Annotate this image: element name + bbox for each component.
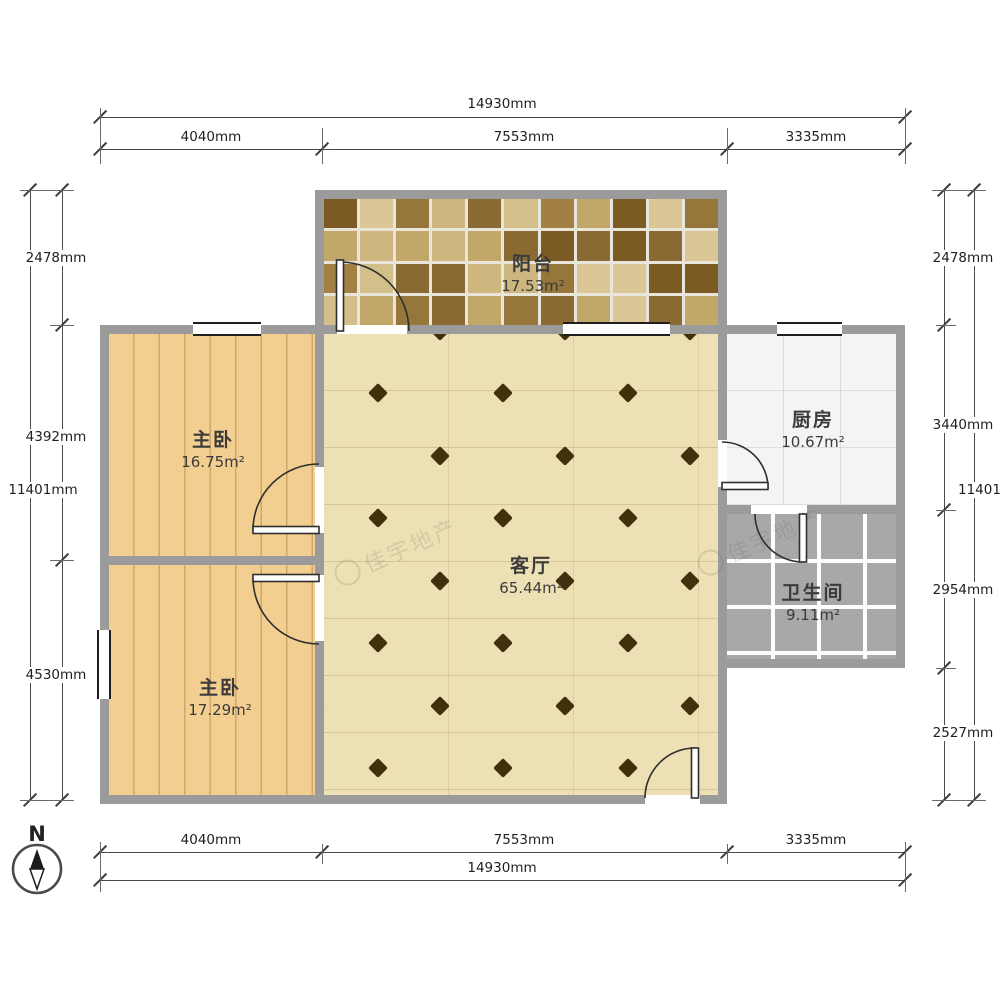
floor-diamond-motif: [324, 696, 325, 716]
balcony-tile: [649, 264, 682, 293]
dim-right-total: 11401mm: [956, 482, 1000, 498]
balcony-tile: [324, 296, 357, 325]
dim-extension-line: [727, 128, 728, 164]
dim-extension-line: [50, 560, 74, 561]
floor-diamond-motif: [680, 334, 700, 340]
floor-diamond-motif: [680, 446, 700, 466]
floor-diamond-motif: [368, 758, 388, 778]
room-label-living: 客厅 65.44m²: [499, 551, 563, 597]
balcony-tile: [324, 199, 357, 228]
kitchen-door-opening: [718, 440, 727, 487]
balcony-tile: [396, 231, 429, 260]
dim-bottom-seg-1: 4040mm: [179, 832, 244, 848]
room-area-bedroom-bottom: 17.29m²: [188, 701, 252, 719]
balcony-tile: [396, 296, 429, 325]
floor-diamond-motif: [493, 633, 513, 653]
room-area-living: 65.44m²: [499, 579, 563, 597]
floor-diamond-motif: [618, 508, 638, 528]
balcony-tile: [324, 231, 357, 260]
dim-bottom-total: 14930mm: [465, 860, 538, 876]
dim-extension-line: [322, 128, 323, 164]
balcony-tile: [685, 296, 718, 325]
bedroom-top-door-opening: [315, 467, 324, 533]
dim-right-seg-2: 3440mm: [931, 417, 996, 433]
balcony-tile: [685, 231, 718, 260]
dim-right-seg-3: 2954mm: [931, 582, 996, 598]
floor-diamond-motif: [555, 446, 575, 466]
floor-diamond-motif: [430, 571, 450, 591]
balcony-tile: [649, 231, 682, 260]
dim-line-right-inner: [944, 190, 945, 800]
dim-top-seg-2: 7553mm: [492, 129, 557, 145]
dim-line-top-outer: [100, 117, 905, 118]
balcony-tile: [685, 264, 718, 293]
kitchen-window: [777, 322, 842, 336]
wall-balcony-left: [315, 199, 324, 334]
balcony-tile: [577, 296, 610, 325]
wall-balcony-top: [315, 190, 727, 199]
floor-diamond-motif: [680, 696, 700, 716]
floor-diamond-motif: [555, 696, 575, 716]
balcony-tile: [613, 264, 646, 293]
balcony-tile: [613, 199, 646, 228]
dim-extension-line: [727, 844, 728, 864]
wall-bedrooms-living: [315, 334, 324, 795]
floor-diamond-motif: [324, 571, 325, 591]
balcony-tile: [541, 199, 574, 228]
room-name-balcony: 阳台: [501, 249, 565, 276]
dim-extension-line: [100, 842, 101, 892]
floor-diamond-motif: [493, 508, 513, 528]
floor-diamond-motif: [430, 446, 450, 466]
dim-extension-line: [100, 108, 101, 164]
balcony-tile: [541, 296, 574, 325]
dim-extension-line: [20, 190, 74, 191]
balcony-tile: [396, 199, 429, 228]
dim-extension-line: [50, 325, 74, 326]
wall-balcony-right: [718, 199, 727, 334]
balcony-tile: [577, 264, 610, 293]
floor-diamond-motif: [618, 633, 638, 653]
room-name-living: 客厅: [499, 551, 563, 578]
dim-left-seg-3: 4530mm: [24, 667, 89, 683]
balcony-door-opening: [337, 325, 407, 334]
dim-line-bottom-outer: [100, 880, 905, 881]
wall-bottom: [100, 795, 727, 804]
room-name-kitchen: 厨房: [781, 405, 845, 432]
floor-diamond-motif: [680, 571, 700, 591]
room-name-bedroom-bottom: 主卧: [188, 673, 252, 700]
dim-bottom-seg-3: 3335mm: [784, 832, 849, 848]
balcony-tile: [432, 296, 465, 325]
dim-bottom-seg-2: 7553mm: [492, 832, 557, 848]
balcony-tile: [324, 264, 357, 293]
dim-line-top-inner: [100, 149, 905, 150]
room-label-kitchen: 厨房 10.67m²: [781, 405, 845, 451]
room-label-balcony: 阳台 17.53m²: [501, 249, 565, 295]
balcony-tile: [649, 296, 682, 325]
balcony-tile: [432, 264, 465, 293]
dim-extension-line: [905, 108, 906, 164]
balcony-tile: [432, 231, 465, 260]
entry-door-opening: [645, 795, 700, 804]
floor-plan-page: { "plan": { "rooms": [ {"name": "阳台", "a…: [0, 0, 1000, 1000]
balcony-tile: [504, 199, 537, 228]
bedroom-bottom-window: [97, 630, 111, 699]
floor-diamond-motif: [368, 508, 388, 528]
floor-diamond-motif: [618, 383, 638, 403]
balcony-tile: [468, 199, 501, 228]
dim-extension-line: [20, 800, 74, 801]
dim-right-seg-4: 2527mm: [931, 725, 996, 741]
balcony-tile: [685, 199, 718, 228]
balcony-living-window: [563, 322, 670, 336]
balcony-tile: [432, 199, 465, 228]
dim-left-seg-2: 4392mm: [24, 429, 89, 445]
bedroom-bottom-door-opening: [315, 575, 324, 641]
dim-line-bottom-inner: [100, 852, 905, 853]
wall-bathroom-bottom: [727, 659, 905, 668]
balcony-tile: [468, 231, 501, 260]
dim-top-seg-1: 4040mm: [179, 129, 244, 145]
floor-diamond-motif: [430, 334, 450, 340]
compass-icon: [10, 842, 64, 896]
dim-left-seg-1: 2478mm: [24, 250, 89, 266]
dim-left-total: 11401mm: [6, 482, 79, 498]
room-name-bathroom: 卫生间: [781, 578, 844, 605]
room-label-bathroom: 卫生间 9.11m²: [781, 578, 844, 624]
balcony-tile: [360, 231, 393, 260]
floor-diamond-motif: [368, 383, 388, 403]
balcony-tile: [468, 296, 501, 325]
balcony-tile: [649, 199, 682, 228]
balcony-tile: [360, 199, 393, 228]
wall-bedroom-divider: [109, 556, 315, 565]
room-area-balcony: 17.53m²: [501, 277, 565, 295]
dim-right-seg-1: 2478mm: [931, 250, 996, 266]
balcony-tile: [577, 199, 610, 228]
wall-right: [896, 334, 905, 668]
room-name-bedroom-top: 主卧: [181, 425, 245, 452]
dim-extension-line: [322, 844, 323, 864]
floor-diamond-motif: [368, 633, 388, 653]
dim-extension-line: [936, 325, 956, 326]
floor-diamond-motif: [324, 446, 325, 466]
room-label-bedroom-bottom: 主卧 17.29m²: [188, 673, 252, 719]
bedroom-top-window: [193, 322, 261, 336]
balcony-tile: [360, 296, 393, 325]
dim-top-total: 14930mm: [465, 96, 538, 112]
dim-extension-line: [936, 510, 956, 511]
dim-extension-line: [932, 190, 986, 191]
balcony-tile: [613, 231, 646, 260]
floor-diamond-motif: [430, 696, 450, 716]
dim-top-seg-3: 3335mm: [784, 129, 849, 145]
floor-diamond-motif: [618, 758, 638, 778]
room-area-bathroom: 9.11m²: [781, 606, 844, 624]
balcony-tile: [577, 231, 610, 260]
balcony-tile: [613, 296, 646, 325]
dim-extension-line: [936, 668, 956, 669]
dim-extension-line: [905, 842, 906, 892]
room-area-bedroom-top: 16.75m²: [181, 453, 245, 471]
floor-diamond-motif: [493, 758, 513, 778]
balcony-tile: [360, 264, 393, 293]
wall-left: [100, 334, 109, 804]
floor-diamond-motif: [493, 383, 513, 403]
balcony-tile: [468, 264, 501, 293]
room-label-bedroom-top: 主卧 16.75m²: [181, 425, 245, 471]
room-area-kitchen: 10.67m²: [781, 433, 845, 451]
dim-extension-line: [932, 800, 986, 801]
balcony-tile: [504, 296, 537, 325]
balcony-tile: [396, 264, 429, 293]
